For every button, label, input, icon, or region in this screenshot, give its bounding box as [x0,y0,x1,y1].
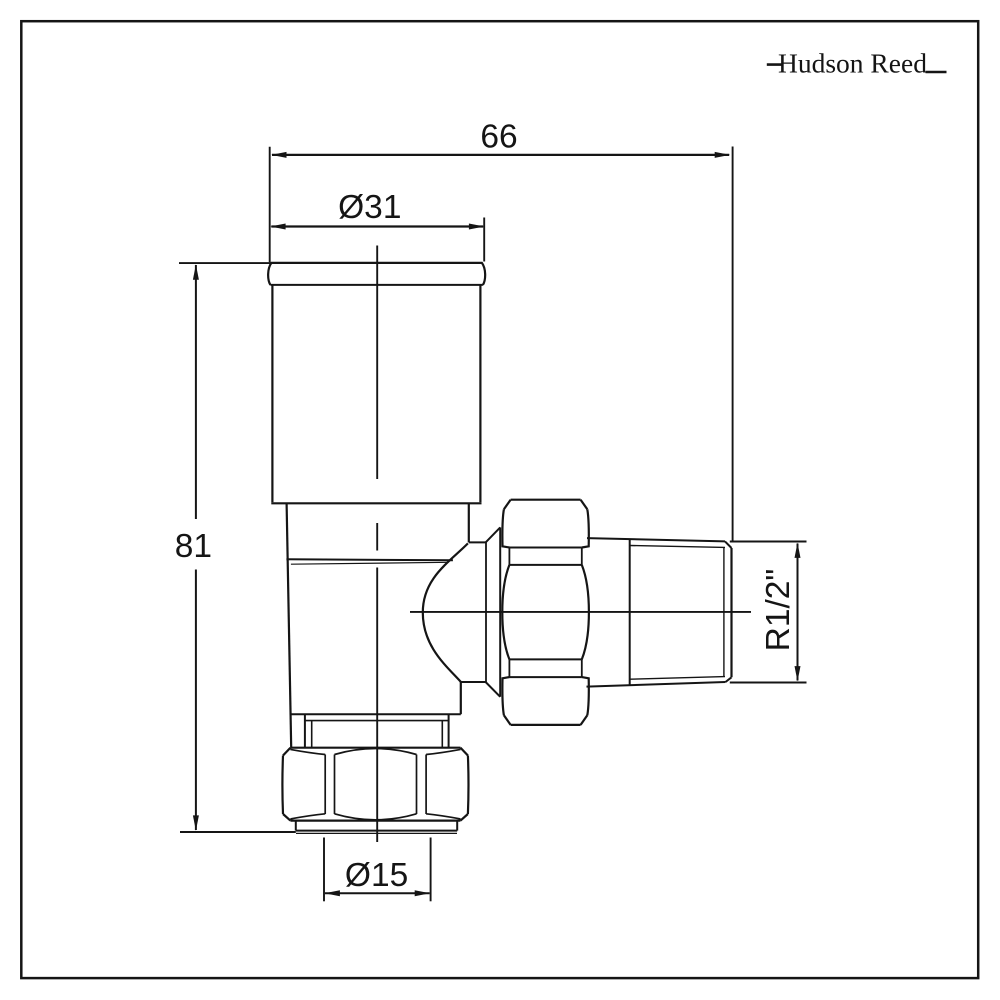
svg-text:66: 66 [480,119,517,156]
svg-text:81: 81 [175,528,212,565]
svg-text:R1/2": R1/2" [760,569,797,652]
svg-text:Ø15: Ø15 [345,857,408,894]
svg-text:Hudson Reed: Hudson Reed [778,48,927,79]
svg-text:Ø31: Ø31 [338,189,401,226]
